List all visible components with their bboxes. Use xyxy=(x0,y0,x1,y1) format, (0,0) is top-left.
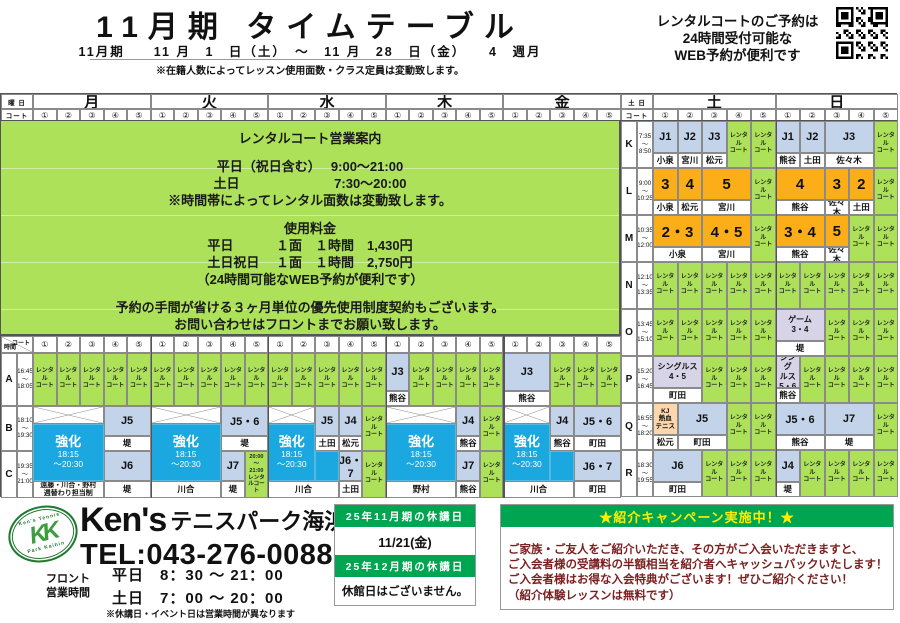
rental-info-line xyxy=(1,288,619,299)
lesson-cell: 3 xyxy=(653,168,678,200)
cancelled-cell xyxy=(151,406,222,424)
coach-name: 松元 xyxy=(339,436,363,451)
coach-name: 野村 xyxy=(386,481,457,498)
coach-name: 熊谷 xyxy=(776,200,825,215)
hours-note: ※休講日・イベント日は営業時間が異なります xyxy=(106,607,295,620)
court-number: ⑤ xyxy=(245,336,269,353)
rental-court-cell: レンタルコート xyxy=(727,403,752,450)
court-number: ② xyxy=(174,336,198,353)
coach-name: 堤 xyxy=(221,436,268,451)
rental-court-cell: レンタルコート xyxy=(751,356,776,403)
coach-name: 小泉 xyxy=(653,200,678,215)
lesson-cell: KJ熱血テニス xyxy=(653,403,678,435)
rental-info-line: 使用料金 xyxy=(1,220,619,237)
coach-name: 堤 xyxy=(825,435,874,450)
day-header-weekend-2: 日 xyxy=(776,94,899,109)
date-range: 11月期 11 月 1 日（土） ～ 11 月 28 日（金） 4 週月 xyxy=(0,41,620,60)
rental-court-cell: レンタルコート xyxy=(550,353,574,406)
day-header-weekend-1: 土 xyxy=(653,94,776,109)
rental-court-cell: レンタルコート xyxy=(825,309,850,356)
lesson-cell: J5・6 xyxy=(776,403,825,435)
holiday-box: 25年11月期の休講日 11/21(金) 25年12月期の休講日 休館日はござい… xyxy=(334,504,476,606)
row-time-N: 12:10～13:35 xyxy=(637,262,653,309)
row-time-C: 19:35～21:00 xyxy=(17,451,33,498)
kyoka-lesson-ext xyxy=(550,451,574,481)
day-header-3: 水 xyxy=(268,94,386,109)
lesson-cell: J7 xyxy=(456,451,480,481)
row-label-O: O xyxy=(621,309,637,356)
kyoka-lesson-cell: 強化18:15～20:30 xyxy=(33,424,104,481)
corner-time-court: 時間コート xyxy=(1,336,33,353)
court-number: ② xyxy=(409,336,433,353)
campaign-box: ★紹介キャンペーン実施中！★ ご家族・ご友人をご紹介いただき、その方がご入会いた… xyxy=(500,504,894,610)
row-time-L: 9:00～10:25 xyxy=(637,168,653,215)
row-label-A: A xyxy=(1,353,17,406)
lesson-cell: J4 xyxy=(339,406,363,436)
holiday-header-december: 25年12月期の休講日 xyxy=(335,555,475,577)
cancelled-cell xyxy=(386,406,457,424)
court-number: ③ xyxy=(198,336,222,353)
lesson-cell: J4 xyxy=(456,406,480,436)
weekend-hours: 土日 7：00 ～ 20：00 xyxy=(112,587,284,608)
day-divider xyxy=(151,336,152,498)
coach-name: 熊谷 xyxy=(776,388,801,403)
rental-court-cell: レンタルコート xyxy=(597,353,621,406)
coach-name: 町田 xyxy=(653,482,702,497)
rental-court-cell: レンタルコート xyxy=(315,353,339,406)
rental-court-cell: レンタルコート xyxy=(151,353,175,406)
capacity-note: ※在籍人数によってレッスン使用面数・クラス定員は変動致します。 xyxy=(0,62,620,77)
web-note-line: WEB予約が便利です xyxy=(640,48,835,65)
coach-name: 堤 xyxy=(776,341,825,356)
coach-name: 町田 xyxy=(574,481,621,498)
rental-court-cell: レンタルコート xyxy=(480,406,504,451)
campaign-line: ご入会者様はお得な入会特典がございます！ぜひご紹介ください！ xyxy=(508,573,887,588)
rental-info-line: 平日（祝日含む） 9:00～21:00 xyxy=(1,158,619,175)
court-number: ① xyxy=(386,336,410,353)
rental-court-cell: レンタルコート xyxy=(849,450,874,497)
rental-info-line: お問い合わせはフロントまでお願い致します。 xyxy=(1,316,619,333)
rental-info-line xyxy=(1,209,619,220)
lesson-cell: J6・7 xyxy=(339,451,363,481)
coach-name: 川合 xyxy=(151,481,222,498)
corner-day-label: 曜 日 xyxy=(1,94,33,109)
court-number: ④ xyxy=(104,336,128,353)
court-number: ④ xyxy=(339,336,363,353)
court-number: ③ xyxy=(433,336,457,353)
rental-court-cell: レンタルコート xyxy=(751,309,776,356)
rental-court-cell: レンタルコート xyxy=(874,403,899,450)
rental-court-cell: レンタルコート xyxy=(409,353,433,406)
row-time-K: 7:35～8:50 xyxy=(637,121,653,168)
coach-name: 佐々木 xyxy=(825,153,874,168)
rental-court-cell: レンタルコート xyxy=(702,450,727,497)
coach-name: 熊谷 xyxy=(386,391,410,406)
rental-court-cell: 20:00～21:00レンタルコート xyxy=(245,451,269,498)
rental-court-cell: レンタルコート xyxy=(874,262,899,309)
court-number: ④ xyxy=(456,336,480,353)
rental-court-cell: レンタルコート xyxy=(751,121,776,168)
rental-court-cell: レンタルコート xyxy=(574,353,598,406)
day-header-5: 金 xyxy=(503,94,621,109)
lesson-cell: J5・6 xyxy=(574,406,621,436)
rental-court-cell: レンタルコート xyxy=(849,356,874,403)
row-label-M: M xyxy=(621,215,637,262)
rental-court-cell: レンタルコート xyxy=(825,450,850,497)
rental-court-cell: レンタルコート xyxy=(127,353,151,406)
subtitle-rule xyxy=(90,59,420,60)
rental-info-line: （24時間可能なWEB予約が便利です） xyxy=(1,271,619,288)
rental-court-cell: レンタルコート xyxy=(874,309,899,356)
row-time-R: 18:30～19:55 xyxy=(637,450,653,497)
lesson-cell: ゲーム3・4 xyxy=(776,309,825,341)
coach-name: 堤 xyxy=(221,481,245,498)
brand-kens: Ken's xyxy=(80,504,166,536)
rental-court-cell: レンタルコート xyxy=(800,450,825,497)
rental-court-cell: レンタルコート xyxy=(653,262,678,309)
lesson-cell: 2 xyxy=(849,168,874,200)
lesson-cell: J4 xyxy=(550,406,574,436)
weekday-hours: 平日 8：30 ～ 21：00 xyxy=(112,564,284,585)
rental-court-cell: レンタルコート xyxy=(702,262,727,309)
lesson-cell: 3・4 xyxy=(776,215,825,247)
rental-court-cell: レンタルコート xyxy=(825,356,850,403)
rental-court-cell: レンタルコート xyxy=(800,262,825,309)
lesson-cell: 5 xyxy=(702,168,751,200)
campaign-title: ★紹介キャンペーン実施中！★ xyxy=(501,505,893,527)
rental-court-cell: レンタルコート xyxy=(874,168,899,215)
holiday-value-november: 11/21(金) xyxy=(335,527,475,555)
court-number: ③ xyxy=(315,336,339,353)
lesson-cell: J2 xyxy=(678,121,703,153)
rental-court-cell: レンタルコート xyxy=(727,121,752,168)
lesson-cell: 5 xyxy=(825,215,850,247)
coach-name: 町田 xyxy=(574,436,621,451)
lesson-cell: シングルス4・5 xyxy=(653,356,702,388)
coach-name: 小泉 xyxy=(653,153,678,168)
rental-court-cell: レンタルコート xyxy=(174,353,198,406)
rental-court-cell: レンタルコート xyxy=(104,353,128,406)
cancelled-cell xyxy=(268,406,315,424)
rental-info-line: ※時間帯によってレンタル面数は変動致します。 xyxy=(1,192,619,209)
rental-court-cell: レンタルコート xyxy=(245,353,269,406)
row-time-A: 16:45～18:05 xyxy=(17,353,33,406)
campaign-body: ご家族・ご友人をご紹介いただき、その方がご入会いただきますと、 ご入会者様の受講… xyxy=(501,527,893,604)
coach-name: 熊谷 xyxy=(456,436,480,451)
rental-court-cell: レンタルコート xyxy=(221,353,245,406)
rental-court-cell: レンタルコート xyxy=(456,353,480,406)
brand-tennis-park: テニスパーク xyxy=(170,504,302,536)
rental-court-cell: レンタルコート xyxy=(751,262,776,309)
lesson-cell: J5 xyxy=(678,403,727,435)
rental-court-cell: レンタルコート xyxy=(727,309,752,356)
rental-court-cell: レンタルコート xyxy=(727,356,752,403)
front-label-line: 営業時間 xyxy=(46,586,90,600)
coach-name: 堤 xyxy=(776,482,801,497)
page-title: 11月期 タイムテーブル xyxy=(0,2,620,46)
kyoka-lesson-cell: 強化18:15～20:30 xyxy=(503,424,550,481)
lesson-cell: J3 xyxy=(825,121,874,153)
row-time-B: 18:10～19:30 xyxy=(17,406,33,451)
court-number: ⑤ xyxy=(362,336,386,353)
lesson-cell: 4 xyxy=(678,168,703,200)
court-number: ④ xyxy=(574,336,598,353)
coach-name: 熊谷 xyxy=(550,436,574,451)
campaign-line: （紹介体験レッスンは無料です） xyxy=(508,589,887,604)
kyoka-lesson-cell: 強化18:15～20:30 xyxy=(151,424,222,481)
lesson-cell: J1 xyxy=(653,121,678,153)
row-label-L: L xyxy=(621,168,637,215)
lesson-cell: J7 xyxy=(825,403,874,435)
row-time-M: 10:35～12:00 xyxy=(637,215,653,262)
kens-logo: Ken's Tennis KK Park Kaihin xyxy=(2,498,83,569)
rental-court-cell: レンタルコート xyxy=(849,262,874,309)
lesson-cell: 3 xyxy=(825,168,850,200)
coach-name: 川合 xyxy=(503,481,574,498)
web-reservation-note: レンタルコートのご予約は 24時間受付可能な WEB予約が便利です xyxy=(640,14,835,65)
coach-name: 熊谷 xyxy=(503,391,550,406)
lesson-cell: J1 xyxy=(776,121,801,153)
coach-name: 宮川 xyxy=(702,247,751,262)
court-number: ⑤ xyxy=(597,336,621,353)
coach-name: 佐々木 xyxy=(825,247,850,262)
coach-name: 宮川 xyxy=(702,200,751,215)
rental-info-line: 土日 7:30～20:00 xyxy=(1,175,619,192)
rental-info-box: レンタルコート営業案内平日（祝日含む） 9:00～21:00土日 7:30～20… xyxy=(0,120,620,335)
rental-court-cell: レンタルコート xyxy=(874,215,899,262)
coach-name: 川合 xyxy=(268,481,339,498)
coach-name: 遠藤・川合・野村週替わり担当制 xyxy=(33,481,104,498)
rental-court-cell: レンタルコート xyxy=(702,356,727,403)
day-divider xyxy=(503,336,504,498)
row-label-N: N xyxy=(621,262,637,309)
rental-info-line xyxy=(1,147,619,158)
front-label-line: フロント xyxy=(46,572,90,586)
row-time-P: 15:20～16:45 xyxy=(637,356,653,403)
coach-name: 土田 xyxy=(315,436,339,451)
rental-court-cell: レンタルコート xyxy=(292,353,316,406)
coach-name: 堤 xyxy=(104,436,151,451)
coach-name: 佐々木 xyxy=(825,200,850,215)
weekend-corner-label: 土 日 xyxy=(621,94,653,109)
coach-name: 堤 xyxy=(104,481,151,498)
coach-name: 松元 xyxy=(653,435,678,450)
rental-court-cell: レンタルコート xyxy=(678,309,703,356)
rental-court-cell: レンタルコート xyxy=(727,450,752,497)
cancelled-cell xyxy=(33,406,104,424)
rental-info-line: レンタルコート営業案内 xyxy=(1,130,619,147)
rental-court-cell: レンタルコート xyxy=(362,406,386,451)
rental-court-cell: レンタルコート xyxy=(874,450,899,497)
coach-name: 松元 xyxy=(678,200,703,215)
rental-info-line: 予約の手間が省ける３ヶ月単位の優先使用制度契約もございます。 xyxy=(1,299,619,316)
day-divider xyxy=(386,336,387,498)
coach-name: 熊谷 xyxy=(776,247,825,262)
rental-court-cell: レンタルコート xyxy=(849,215,874,262)
campaign-line: ご家族・ご友人をご紹介いただき、その方がご入会いただきますと、 xyxy=(508,543,887,558)
rental-court-cell: レンタルコート xyxy=(80,353,104,406)
court-number: ③ xyxy=(550,336,574,353)
row-label-B: B xyxy=(1,406,17,451)
sat-sun-divider xyxy=(776,121,777,497)
lesson-cell: J5 xyxy=(315,406,339,436)
lesson-cell: J4 xyxy=(776,450,801,482)
rental-court-cell: レンタルコート xyxy=(268,353,292,406)
lesson-cell: J5・6 xyxy=(221,406,268,436)
coach-name: 松元 xyxy=(702,153,727,168)
court-number: ① xyxy=(151,336,175,353)
row-label-P: P xyxy=(621,356,637,403)
coach-name: 町田 xyxy=(653,388,702,403)
rental-court-cell: レンタルコート xyxy=(362,353,386,406)
cancelled-cell xyxy=(503,406,550,424)
lesson-cell: J7 xyxy=(221,451,245,481)
row-label-R: R xyxy=(621,450,637,497)
front-desk-hours-label: フロント 営業時間 xyxy=(46,572,90,601)
weekend-schedule-grid: K7:35～8:50J1小泉J2宮川J3松元レンタルコートレンタルコートJ1熊谷… xyxy=(620,120,897,496)
day-divider xyxy=(268,336,269,498)
coach-name: 土田 xyxy=(339,481,363,498)
row-label-K: K xyxy=(621,121,637,168)
court-number: ③ xyxy=(80,336,104,353)
row-label-Q: Q xyxy=(621,403,637,450)
campaign-line: ご入会者様の受講料の半額相当を紹介者へキャッシュバックいたします！ xyxy=(508,558,887,573)
court-number: ① xyxy=(503,336,527,353)
lesson-cell: 4 xyxy=(776,168,825,200)
rental-court-cell: レンタルコート xyxy=(480,451,504,498)
lesson-cell: J6 xyxy=(104,451,151,481)
lesson-cell: J6・7 xyxy=(574,451,621,481)
rental-court-cell: レンタルコート xyxy=(874,121,899,168)
court-number: ② xyxy=(292,336,316,353)
rental-court-cell: レンタルコート xyxy=(362,451,386,498)
lesson-cell: シングルス5・6 xyxy=(776,356,801,388)
rental-court-cell: レンタルコート xyxy=(433,353,457,406)
coach-name: 熊谷 xyxy=(776,435,825,450)
rental-court-cell: レンタルコート xyxy=(751,403,776,450)
coach-name: 小泉 xyxy=(653,247,702,262)
lesson-cell: J3 xyxy=(702,121,727,153)
row-time-O: 13:45～15:10 xyxy=(637,309,653,356)
court-number: ⑤ xyxy=(480,336,504,353)
coach-name: 宮川 xyxy=(678,153,703,168)
court-number: ⑤ xyxy=(127,336,151,353)
weekday-evening-grid: 時間コート①②③④⑤①②③④⑤①②③④⑤①②③④⑤①②③④⑤A16:45～18:… xyxy=(0,335,620,497)
rental-court-cell: レンタルコート xyxy=(653,309,678,356)
rental-court-cell: レンタルコート xyxy=(678,262,703,309)
day-header-2: 火 xyxy=(151,94,269,109)
kyoka-lesson-ext xyxy=(315,451,339,481)
day-header-4: 木 xyxy=(386,94,504,109)
rental-court-cell: レンタルコート xyxy=(751,168,776,215)
court-number: ① xyxy=(268,336,292,353)
rental-court-cell: レンタルコート xyxy=(33,353,57,406)
lesson-cell: J5 xyxy=(104,406,151,436)
web-note-line: レンタルコートのご予約は xyxy=(640,14,835,31)
court-number: ① xyxy=(33,336,57,353)
rental-court-cell: レンタルコート xyxy=(800,356,825,403)
row-label-C: C xyxy=(1,451,17,498)
lesson-cell: J3 xyxy=(503,353,550,391)
rental-court-cell: レンタルコート xyxy=(702,309,727,356)
rental-court-cell: レンタルコート xyxy=(198,353,222,406)
rental-info-line: 平日 １面 １時間 1,430円 xyxy=(1,237,619,254)
timetable-header-grid: 曜 日コート月火水木金①②③④⑤①②③④⑤①②③④⑤①②③④⑤①②③④⑤土 日コ… xyxy=(0,93,897,120)
rental-court-cell: レンタルコート xyxy=(339,353,363,406)
rental-court-cell: レンタルコート xyxy=(825,262,850,309)
lesson-cell: 4・5 xyxy=(702,215,751,247)
row-time-Q: 16:55～18:20 xyxy=(637,403,653,450)
court-number: ② xyxy=(527,336,551,353)
lesson-cell: J6 xyxy=(653,450,702,482)
rental-court-cell: レンタルコート xyxy=(751,450,776,497)
rental-info-text: レンタルコート営業案内平日（祝日含む） 9:00～21:00土日 7:30～20… xyxy=(1,121,619,333)
rental-court-cell: レンタルコート xyxy=(480,353,504,406)
kyoka-lesson-cell: 強化18:15～20:30 xyxy=(268,424,315,481)
court-number: ④ xyxy=(221,336,245,353)
lesson-cell: J3 xyxy=(386,353,410,391)
coach-name: 町田 xyxy=(678,435,727,450)
rental-court-cell: レンタルコート xyxy=(776,262,801,309)
lesson-cell: J2 xyxy=(800,121,825,153)
rental-court-cell: レンタルコート xyxy=(57,353,81,406)
lesson-cell: 2・3 xyxy=(653,215,702,247)
rental-court-cell: レンタルコート xyxy=(874,356,899,403)
holiday-value-december: 休館日はございません。 xyxy=(335,577,475,605)
rental-info-line: 土日祝日 １面 １時間 2,750円 xyxy=(1,254,619,271)
web-note-line: 24時間受付可能な xyxy=(640,31,835,48)
qr-code-image xyxy=(836,7,888,59)
court-number: ② xyxy=(57,336,81,353)
kyoka-lesson-cell: 強化18:15～20:30 xyxy=(386,424,457,481)
holiday-header-november: 25年11月期の休講日 xyxy=(335,505,475,527)
coach-name: 土田 xyxy=(800,153,825,168)
rental-court-cell: レンタルコート xyxy=(849,309,874,356)
rental-court-cell: レンタルコート xyxy=(751,215,776,262)
rental-court-cell: レンタルコート xyxy=(727,262,752,309)
coach-name: 土田 xyxy=(849,200,874,215)
coach-name: 熊谷 xyxy=(456,481,480,498)
coach-name: 熊谷 xyxy=(776,153,801,168)
day-header-1: 月 xyxy=(33,94,151,109)
